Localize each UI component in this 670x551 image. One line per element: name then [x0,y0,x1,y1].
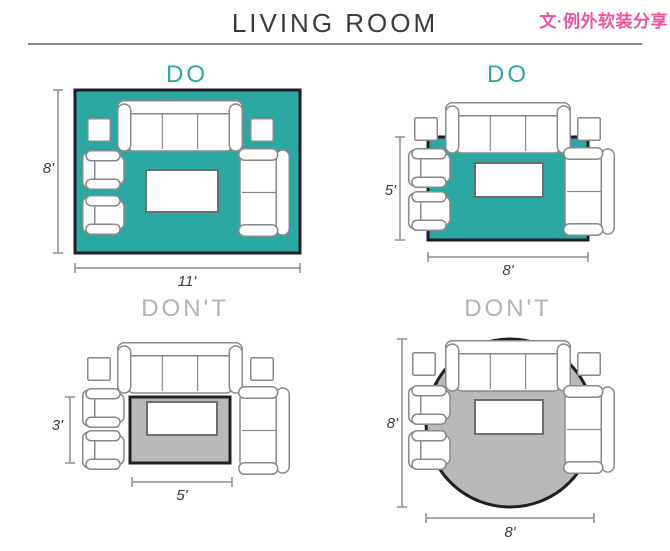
loveseat [239,149,290,237]
height-dimension: 3' [52,397,75,463]
width-label: 5' [176,487,188,504]
armchair-lower [83,431,124,470]
height-label: 8' [43,160,55,177]
verdict-label-dont-round-rug: DON'T [428,295,588,323]
coffee-table [475,163,543,197]
width-label: 11' [178,273,198,290]
armchair-lower [409,431,450,470]
width-dimension: 11' [75,263,300,290]
side-table-right [251,358,274,381]
sofa [446,103,571,153]
height-dimension: 5' [385,137,405,240]
loveseat [564,386,615,474]
sofa [118,101,243,151]
watermark-credit: 文·例外软装分享 [539,7,668,32]
sofa [446,341,571,391]
side-table-left [415,118,438,141]
height-dimension: 8' [387,339,407,507]
side-table-left [88,119,111,142]
height-dimension: 8' [43,90,63,253]
height-label: 8' [387,415,399,432]
armchair-upper [409,386,450,425]
panel-do-medium-rug: 5' 8' [380,85,670,290]
armchair-lower [409,192,450,231]
width-dimension: 8' [426,513,594,541]
side-table-right [578,118,601,141]
header-divider [28,43,642,45]
loveseat [239,387,290,475]
sofa [118,343,243,393]
width-dimension: 5' [132,477,232,504]
panel-do-large-rug: 8' 11' [40,85,330,290]
width-label: 8' [502,262,514,279]
coffee-table [147,402,217,435]
height-label: 5' [385,182,397,199]
verdict-label-dont-small-rug: DON'T [105,295,265,323]
armchair-lower [83,196,124,235]
side-table-left [413,353,436,376]
height-label: 3' [52,417,64,434]
side-table-left [88,358,111,381]
coffee-table [475,400,543,434]
coffee-table [146,170,218,212]
side-table-right [578,353,601,376]
panel-dont-round-rug: 8' 8' [380,320,670,551]
side-table-right [251,119,274,142]
loveseat [564,148,615,236]
armchair-upper [83,389,124,428]
panel-dont-small-rug: 3' 5' [40,320,330,520]
armchair-upper [409,149,450,188]
width-label: 8' [504,524,516,541]
armchair-upper [83,151,124,190]
width-dimension: 8' [428,252,588,279]
